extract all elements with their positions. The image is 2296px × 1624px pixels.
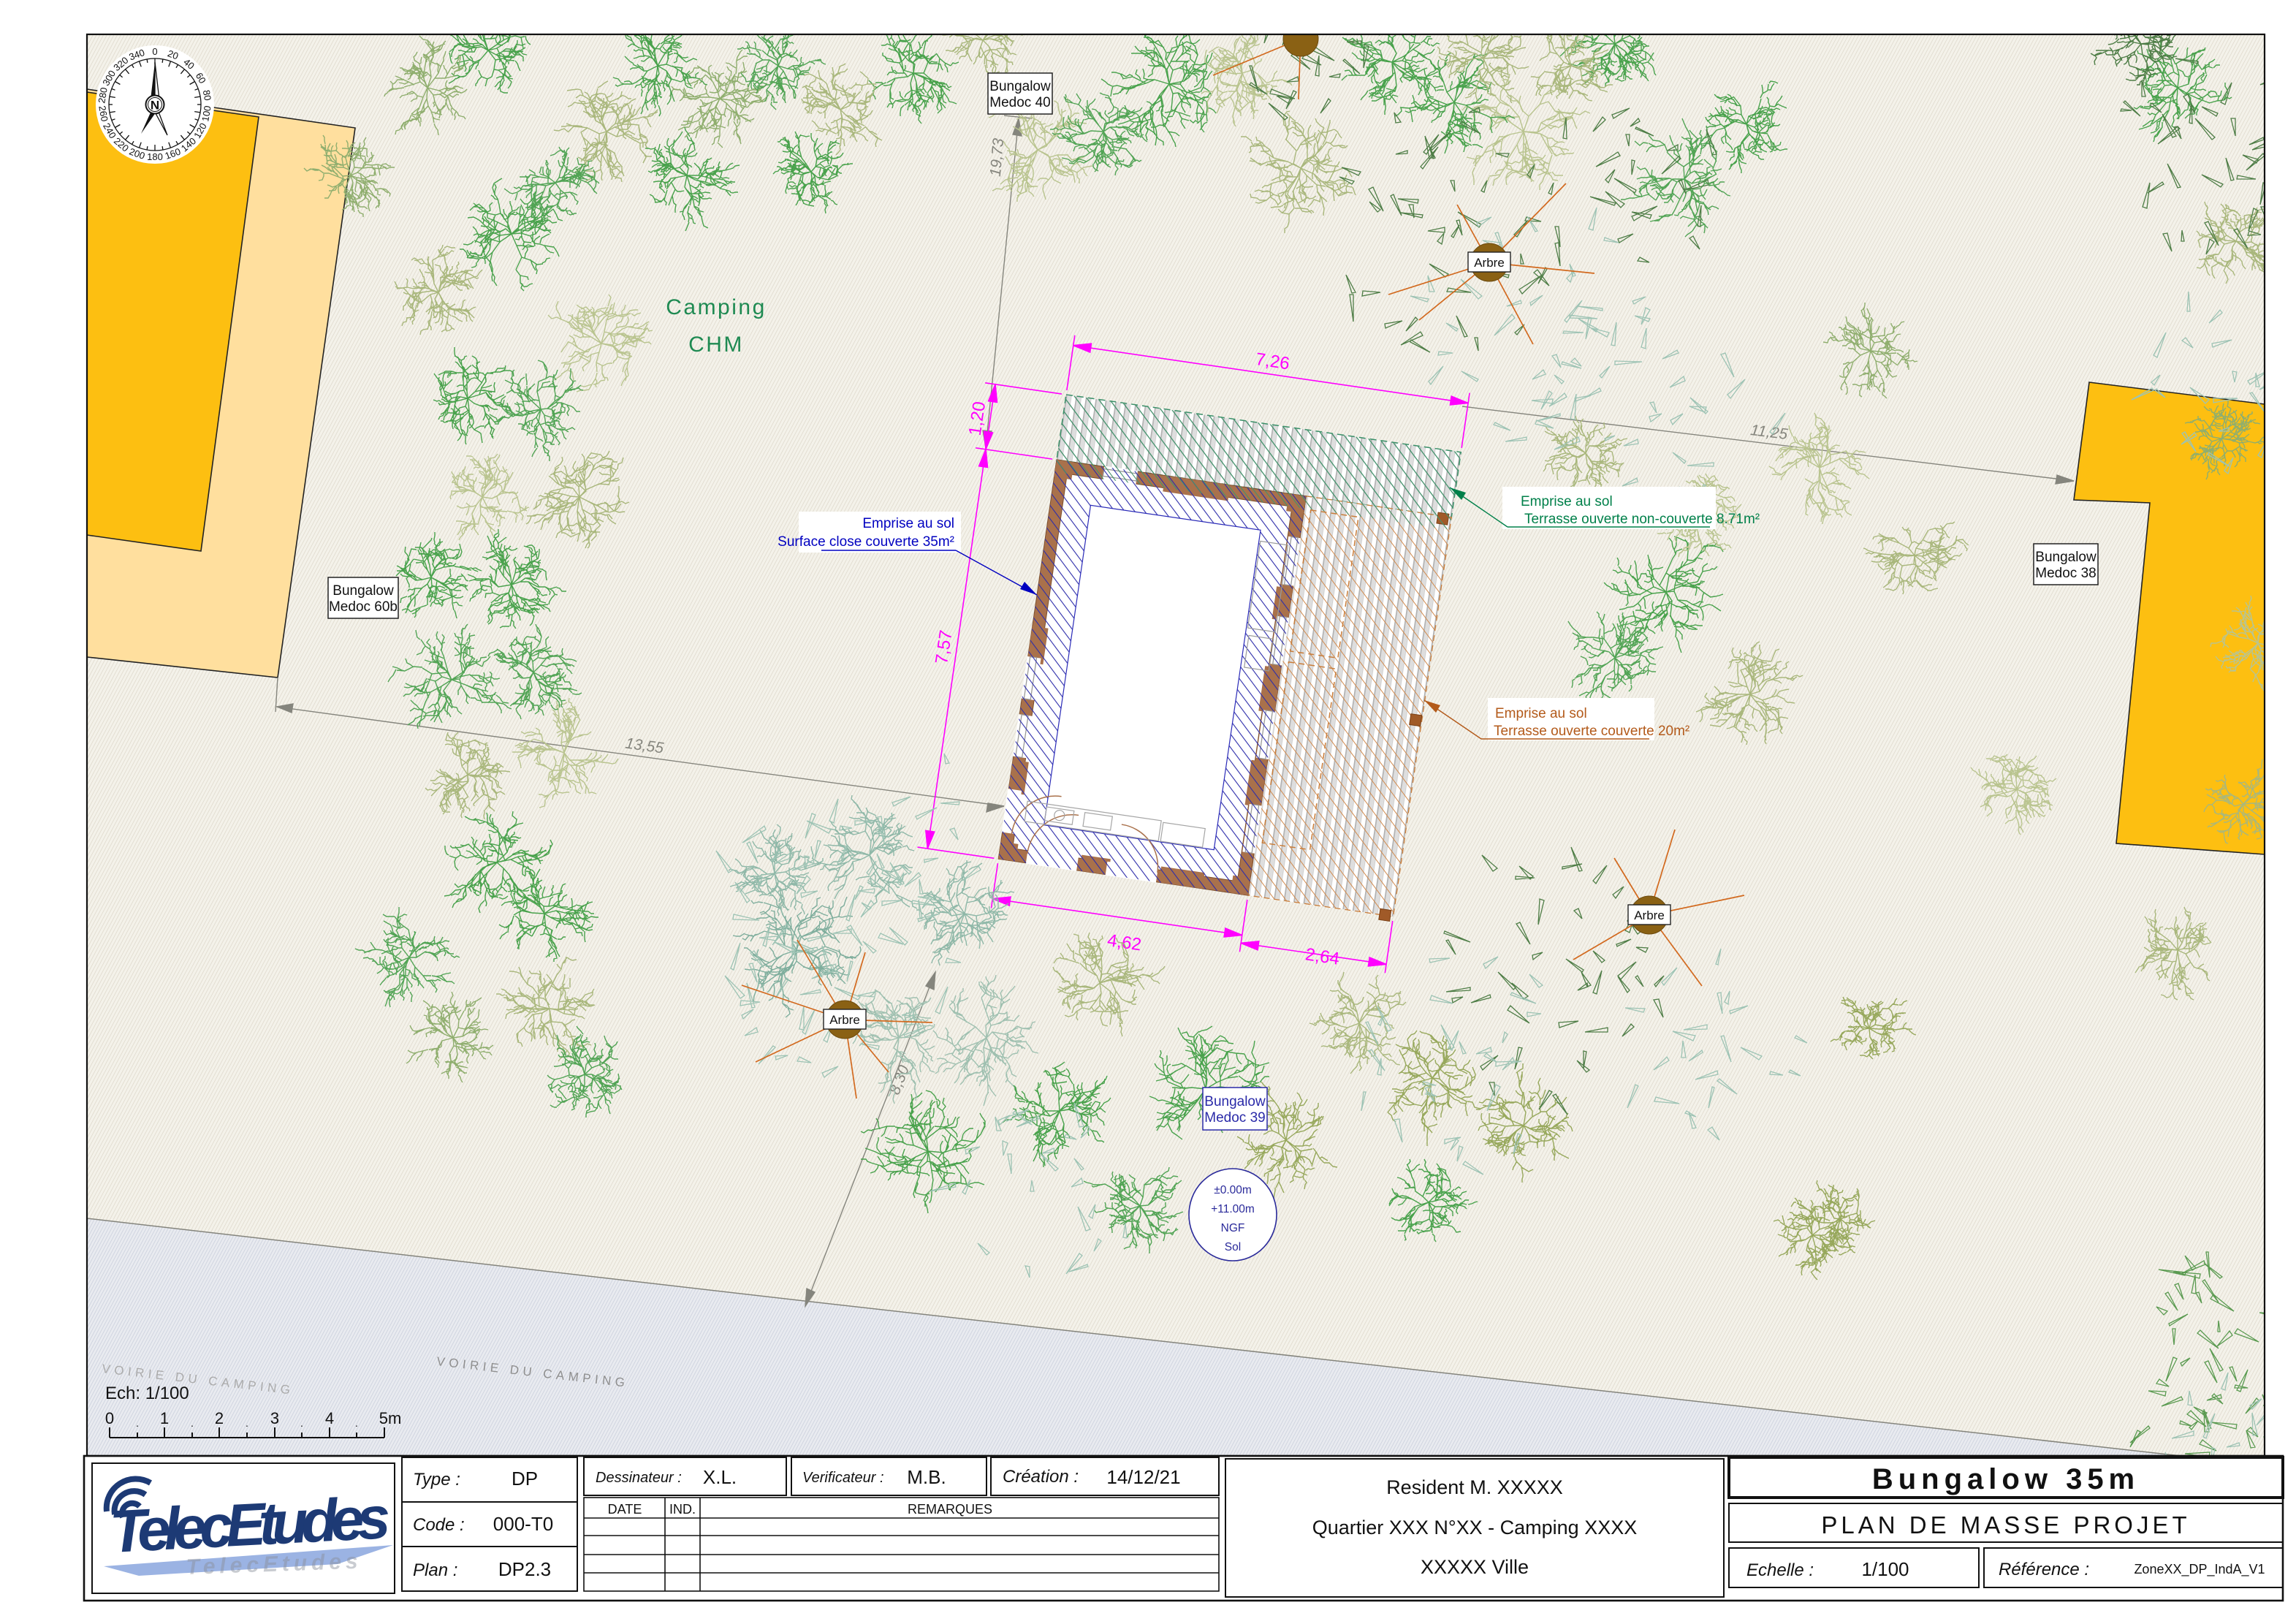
svg-text:Terrasse ouverte non-couverte: Terrasse ouverte non-couverte 8.71m² [1524,512,1760,527]
svg-text:Resident M. XXXXX: Resident M. XXXXX [1386,1476,1563,1498]
svg-text:Dessinateur :: Dessinateur : [596,1470,682,1486]
svg-text:ZoneXX_DP_IndA_V1: ZoneXX_DP_IndA_V1 [2134,1562,2265,1577]
svg-text:.: . [355,1417,358,1429]
svg-text:Sol: Sol [1225,1241,1241,1253]
svg-text:0: 0 [105,1409,114,1427]
svg-text:Arbre: Arbre [1634,908,1665,922]
svg-text:Terrasse ouverte couverte 20m²: Terrasse ouverte couverte 20m² [1494,724,1689,739]
svg-text:5m: 5m [379,1409,402,1427]
svg-text:Medoc 38: Medoc 38 [2035,566,2096,581]
svg-text:DATE: DATE [608,1502,642,1517]
svg-text:Création :: Création : [1003,1467,1079,1487]
svg-text:1/100: 1/100 [1861,1558,1909,1580]
svg-text:Type :: Type : [413,1470,460,1490]
svg-text:Medoc 60b: Medoc 60b [329,599,398,615]
svg-text:0: 0 [152,46,157,57]
svg-text:Emprise au sol: Emprise au sol [1495,706,1587,721]
svg-text:Ech: 1/100: Ech: 1/100 [105,1384,189,1403]
svg-text:Surface close couverte 35m²: Surface close couverte 35m² [778,534,954,550]
svg-text:1: 1 [160,1409,169,1427]
svg-text:Emprise au sol: Emprise au sol [1521,494,1613,509]
svg-text:XXXXX Ville: XXXXX Ville [1421,1556,1529,1578]
svg-text:Bungalow 35m: Bungalow 35m [1872,1463,2140,1495]
svg-text:14/12/21: 14/12/21 [1106,1466,1180,1488]
svg-text:REMARQUES: REMARQUES [908,1502,992,1517]
svg-text:±0.00m: ±0.00m [1214,1184,1252,1196]
svg-text:.: . [300,1417,303,1429]
svg-text:Plan :: Plan : [413,1560,457,1580]
svg-text:000-T0: 000-T0 [493,1513,553,1535]
svg-text:Arbre: Arbre [829,1013,860,1027]
svg-text:.: . [191,1417,194,1429]
svg-text:N: N [151,99,159,113]
svg-text:+11.00m: +11.00m [1211,1203,1255,1215]
svg-text:2: 2 [215,1409,224,1427]
svg-text:Camping: Camping [666,295,767,319]
svg-text:Code :: Code : [413,1515,465,1535]
svg-text:Verificateur :: Verificateur : [802,1470,884,1486]
svg-text:4: 4 [325,1409,334,1427]
svg-text:M.B.: M.B. [907,1466,946,1488]
svg-text:Arbre: Arbre [1474,256,1505,270]
svg-text:Echelle :: Echelle : [1746,1560,1814,1580]
svg-text:X.L.: X.L. [703,1466,737,1488]
svg-text:.: . [246,1417,248,1429]
svg-text:Bungalow: Bungalow [2035,550,2097,565]
svg-text:Medoc 40: Medoc 40 [989,95,1050,110]
svg-text:IND.: IND. [669,1502,696,1517]
svg-text:DP: DP [512,1468,538,1490]
svg-text:80: 80 [201,89,213,102]
svg-text:180: 180 [147,151,163,162]
svg-text:Emprise au sol: Emprise au sol [862,516,954,531]
svg-text:.: . [136,1417,139,1429]
svg-text:DP2.3: DP2.3 [498,1558,551,1580]
svg-text:Quartier XXX N°XX - Camping XX: Quartier XXX N°XX - Camping XXXX [1312,1517,1637,1538]
svg-text:CHM: CHM [688,333,744,357]
svg-text:Référence :: Référence : [1999,1560,2089,1579]
svg-text:Bungalow: Bungalow [989,79,1051,94]
svg-text:Bungalow: Bungalow [1204,1094,1266,1109]
svg-text:Medoc 39: Medoc 39 [1204,1110,1265,1126]
svg-text:NGF: NGF [1221,1222,1245,1234]
svg-text:Bungalow: Bungalow [332,583,394,599]
svg-text:3: 3 [270,1409,279,1427]
svg-text:PLAN DE MASSE PROJET: PLAN DE MASSE PROJET [1821,1511,2190,1538]
